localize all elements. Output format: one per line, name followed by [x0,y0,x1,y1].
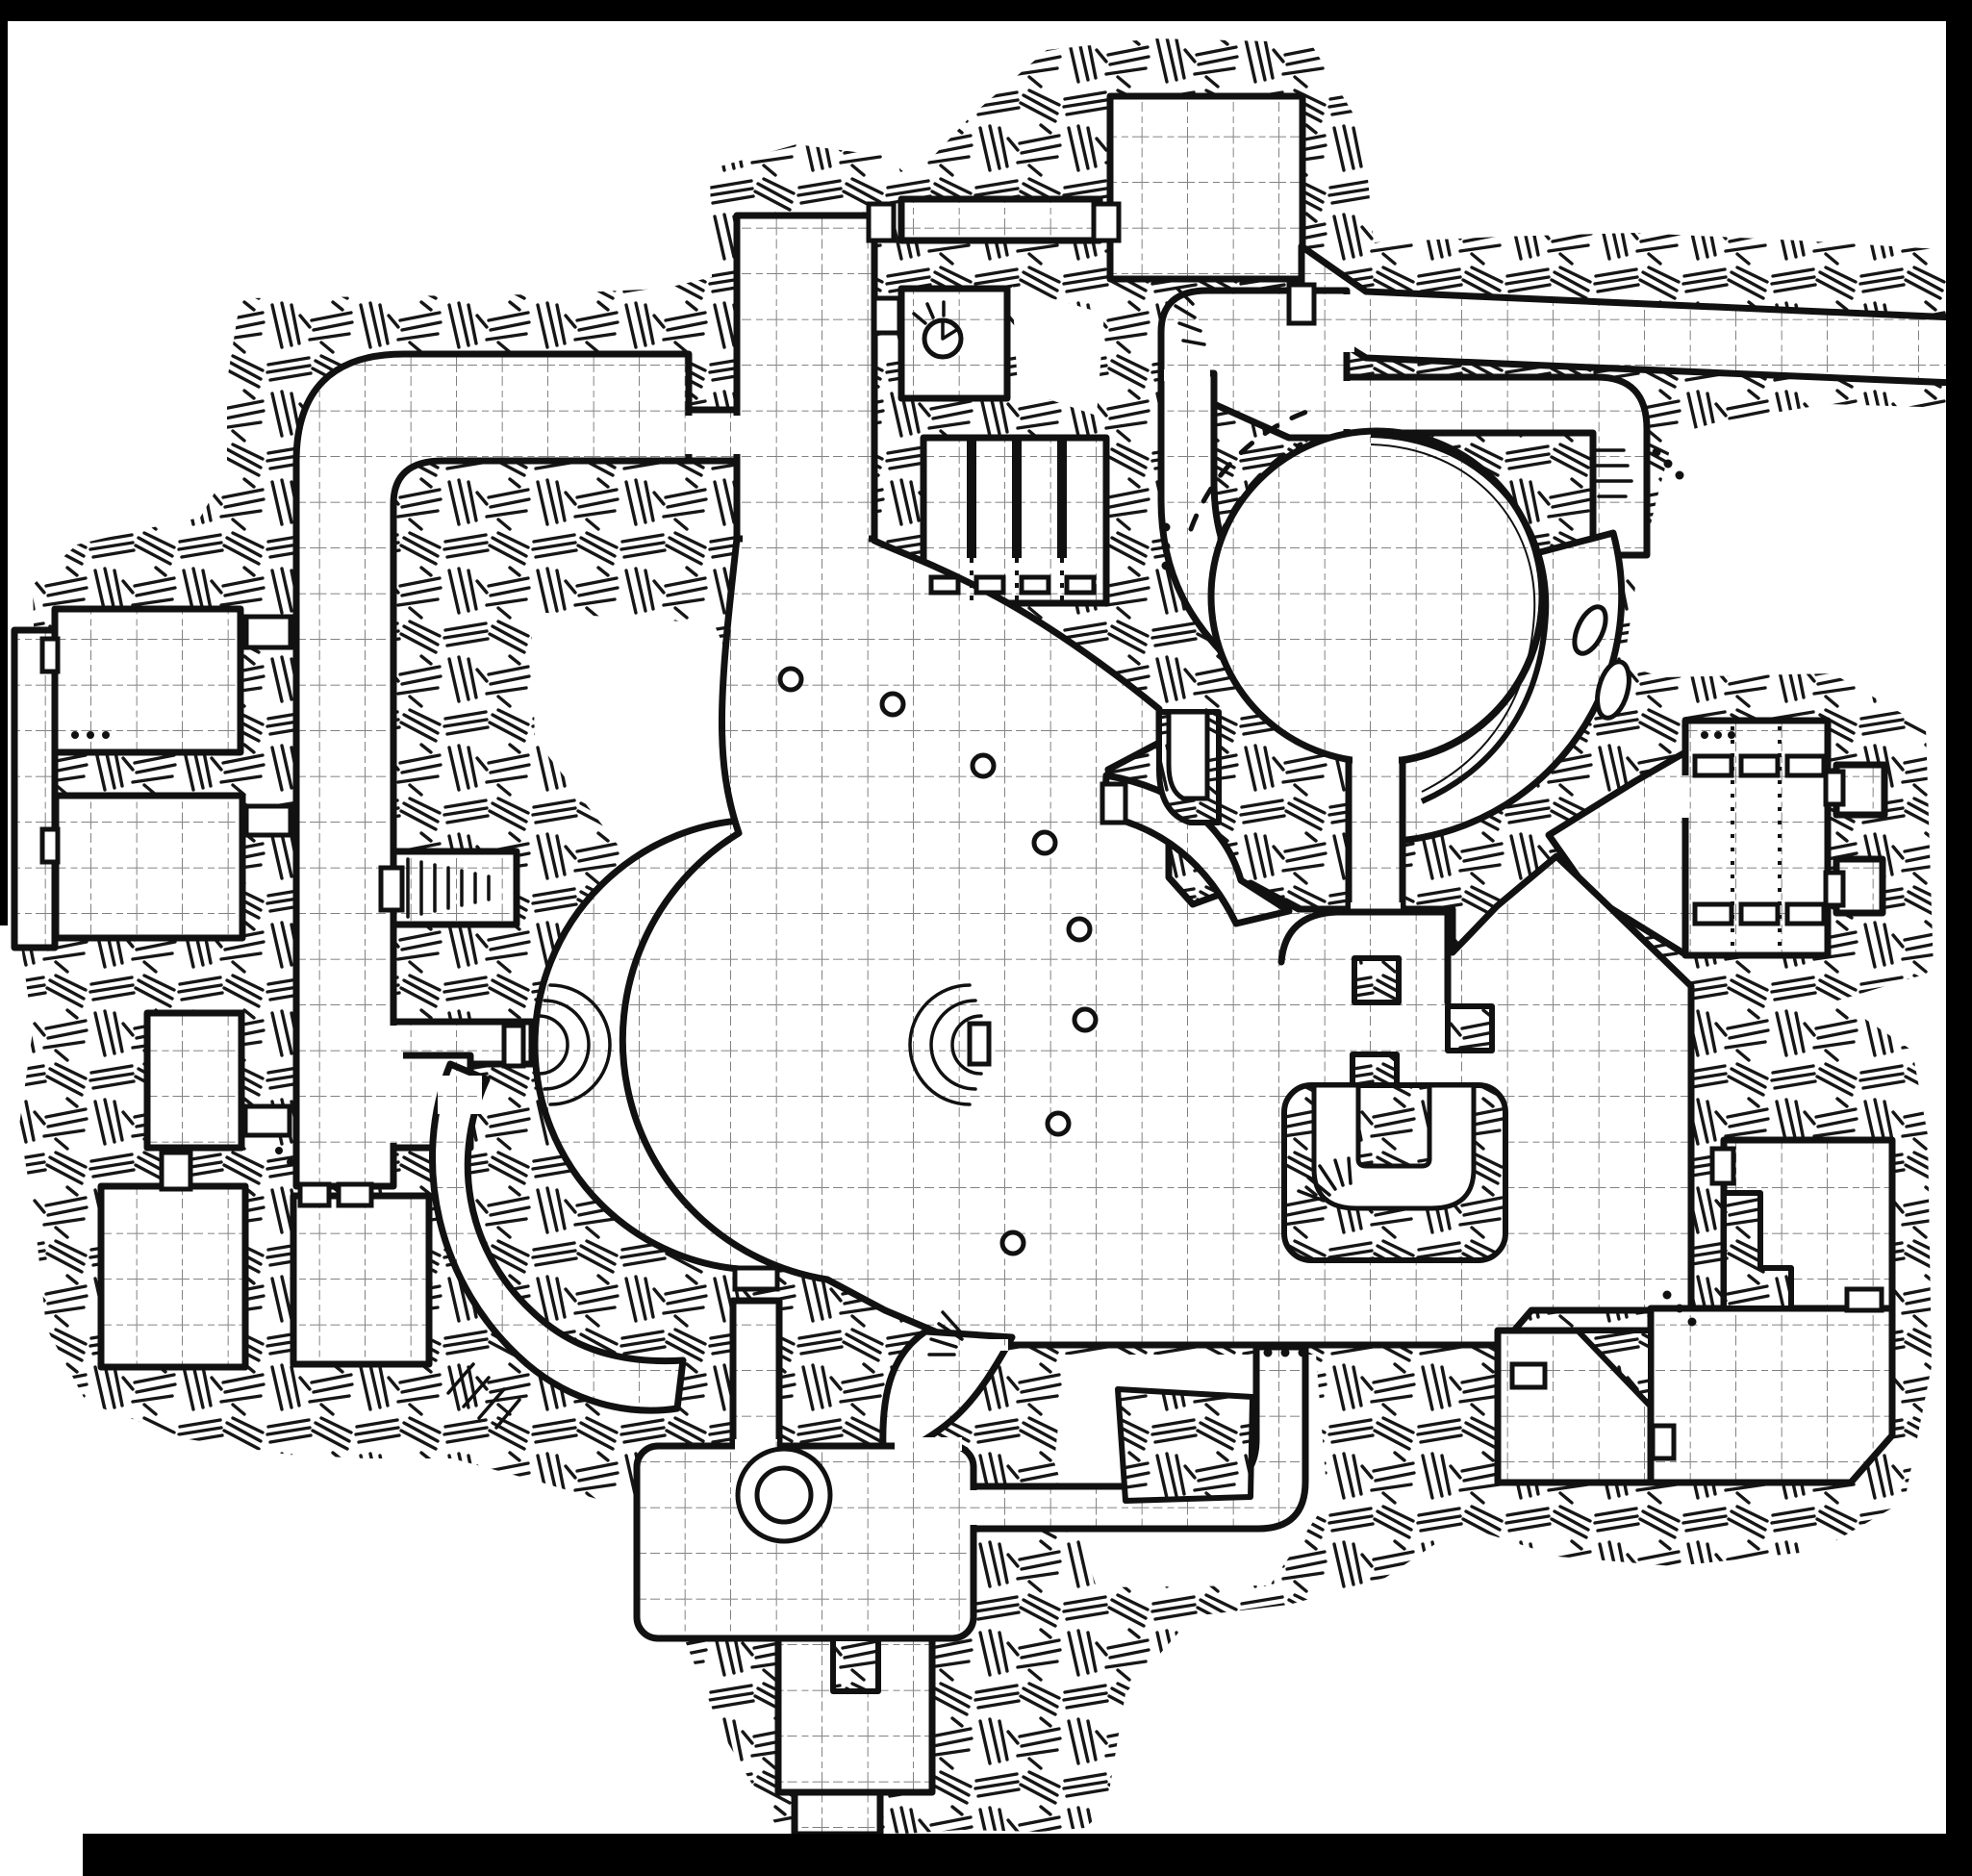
room-d [101,1186,245,1367]
corridor-a [901,199,1100,241]
left-edge-corridor [14,630,55,948]
courtyard-island [1118,1389,1252,1501]
frame-right [1946,0,1972,1876]
stair-stub [393,851,517,925]
spiral-south-neck [1349,760,1403,914]
south-stub [795,1792,880,1835]
frame-left [0,0,8,925]
frame-bottom [83,1834,1972,1876]
dungeon-map-image [0,0,1972,1876]
south-room-pillar [833,1638,878,1691]
room-c [147,1013,241,1148]
room-h [1651,1308,1892,1483]
room-e [293,1196,429,1364]
frame-top [0,0,1972,21]
u-structure [1284,1085,1505,1260]
dungeon-map-svg [0,0,1972,1876]
rotunda-south-corridor [733,1301,779,1450]
north-corridor [737,215,874,543]
room-a [55,609,240,752]
well [738,1449,830,1541]
top-room [1110,96,1302,279]
room-b [56,796,242,938]
